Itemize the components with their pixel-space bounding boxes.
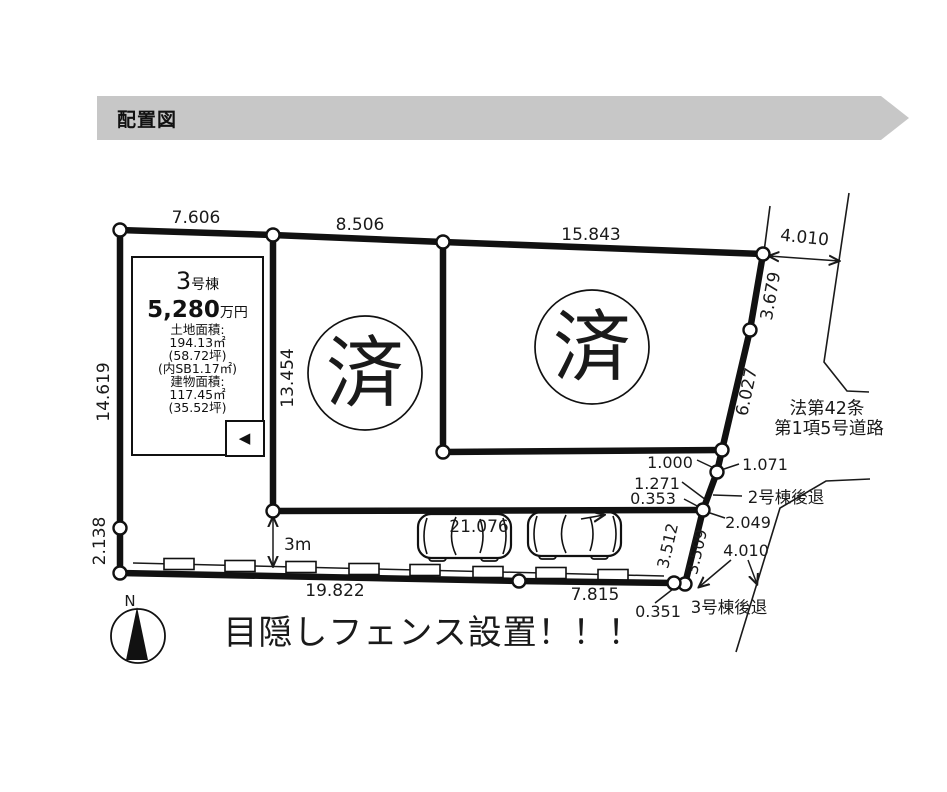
dim-setback-3m: 3m <box>284 535 311 555</box>
driveway-boundary <box>273 510 703 511</box>
dim-seg-3512: 3.512 <box>653 521 682 570</box>
unit-number-value: 3 <box>176 267 191 295</box>
boundary-point <box>437 236 450 249</box>
fence-panel <box>536 568 566 579</box>
dim-drive: 21.076 <box>449 517 508 537</box>
fence-panel <box>349 564 379 575</box>
fence-panel <box>473 567 503 578</box>
corner-extension-line <box>764 206 770 252</box>
boundary-point <box>114 522 127 535</box>
unit-number: 3号棟 <box>133 267 262 296</box>
leader-1071 <box>724 464 739 469</box>
dim-left-a: 14.619 <box>94 362 114 421</box>
fence-panel <box>225 561 255 572</box>
dim-bottom-b: 7.815 <box>571 585 620 605</box>
fence-panel <box>286 562 316 573</box>
sold-stamps: 済 済 <box>308 290 649 430</box>
road-law-label-line1: 法第42条 <box>790 399 865 419</box>
unit3-info-box: 3号棟 5,280万円 土地面積: 194.13㎡ (58.72坪) (内SB1… <box>131 256 264 456</box>
setback-2-label: 2号棟後退 <box>748 488 825 507</box>
dim-left-b: 2.138 <box>90 517 110 566</box>
boundary-point <box>114 224 127 237</box>
building-area-tsubo: (35.52坪) <box>133 401 262 414</box>
fence-panel <box>164 559 194 570</box>
car-body <box>528 512 621 556</box>
dim-bottom-a: 19.822 <box>305 581 364 601</box>
setback-3-label: 3号棟後退 <box>691 598 768 617</box>
boundary-point <box>711 466 724 479</box>
site-plan-page: 配置図 <box>0 0 947 792</box>
fence-note: 目隠しフェンス設置！！！ <box>208 605 658 654</box>
dim-seg-1071: 1.071 <box>742 455 788 474</box>
dim-road-4010: 4.010 <box>723 541 769 560</box>
dim-top-c: 15.843 <box>561 225 620 245</box>
inner-boundary-horizontal <box>443 450 722 452</box>
dim-road-width-top: 4.010 <box>779 226 829 251</box>
left-arrow-icon: ◀ <box>239 429 251 447</box>
boundary-point <box>744 324 757 337</box>
dim-seg-1000: 1.000 <box>647 453 693 472</box>
dim-line-road-width-top <box>769 256 839 261</box>
boundary-point <box>513 575 526 588</box>
boundary-point <box>437 446 450 459</box>
annotation-labels: 法第42条 第1項5号道路 2号棟後退 3号棟後退 <box>691 399 885 617</box>
car-top-view <box>528 509 621 559</box>
dim-mid-vertical: 13.454 <box>278 348 298 407</box>
dim-line-road-4010-left <box>699 560 731 587</box>
sold-mark: 済 <box>553 303 631 393</box>
road-edge-upper <box>824 193 869 392</box>
boundary-point <box>757 248 770 261</box>
boundary-point <box>267 505 280 518</box>
boundary-point <box>697 504 710 517</box>
price-value: 5,280 <box>147 297 220 323</box>
leader-1271 <box>682 482 706 500</box>
compass: N <box>111 592 165 663</box>
leader-0351 <box>655 589 673 603</box>
sold-mark: 済 <box>326 329 404 419</box>
compass-north-label: N <box>124 592 135 610</box>
dim-top-b: 8.506 <box>336 215 385 235</box>
dim-line-road-4010-right <box>748 560 757 584</box>
unit-price: 5,280万円 <box>133 297 262 323</box>
dim-seg-3509: 3.509 <box>682 527 711 576</box>
dim-top-a: 7.606 <box>172 208 221 228</box>
price-unit: 万円 <box>220 305 248 321</box>
dim-seg-0353: 0.353 <box>630 489 676 508</box>
road-law-label-line2: 第1項5号道路 <box>774 419 884 439</box>
compass-needle-icon <box>126 607 148 660</box>
fence-panel <box>410 565 440 576</box>
boundary-point <box>267 229 280 242</box>
boundary-point <box>668 577 681 590</box>
leader-setback2 <box>713 495 742 496</box>
unit-number-suffix: 号棟 <box>191 277 219 293</box>
boundary-point <box>114 567 127 580</box>
nav-arrow-box: ◀ <box>225 420 265 457</box>
dim-seg-2049: 2.049 <box>725 513 771 532</box>
boundary-point <box>716 444 729 457</box>
